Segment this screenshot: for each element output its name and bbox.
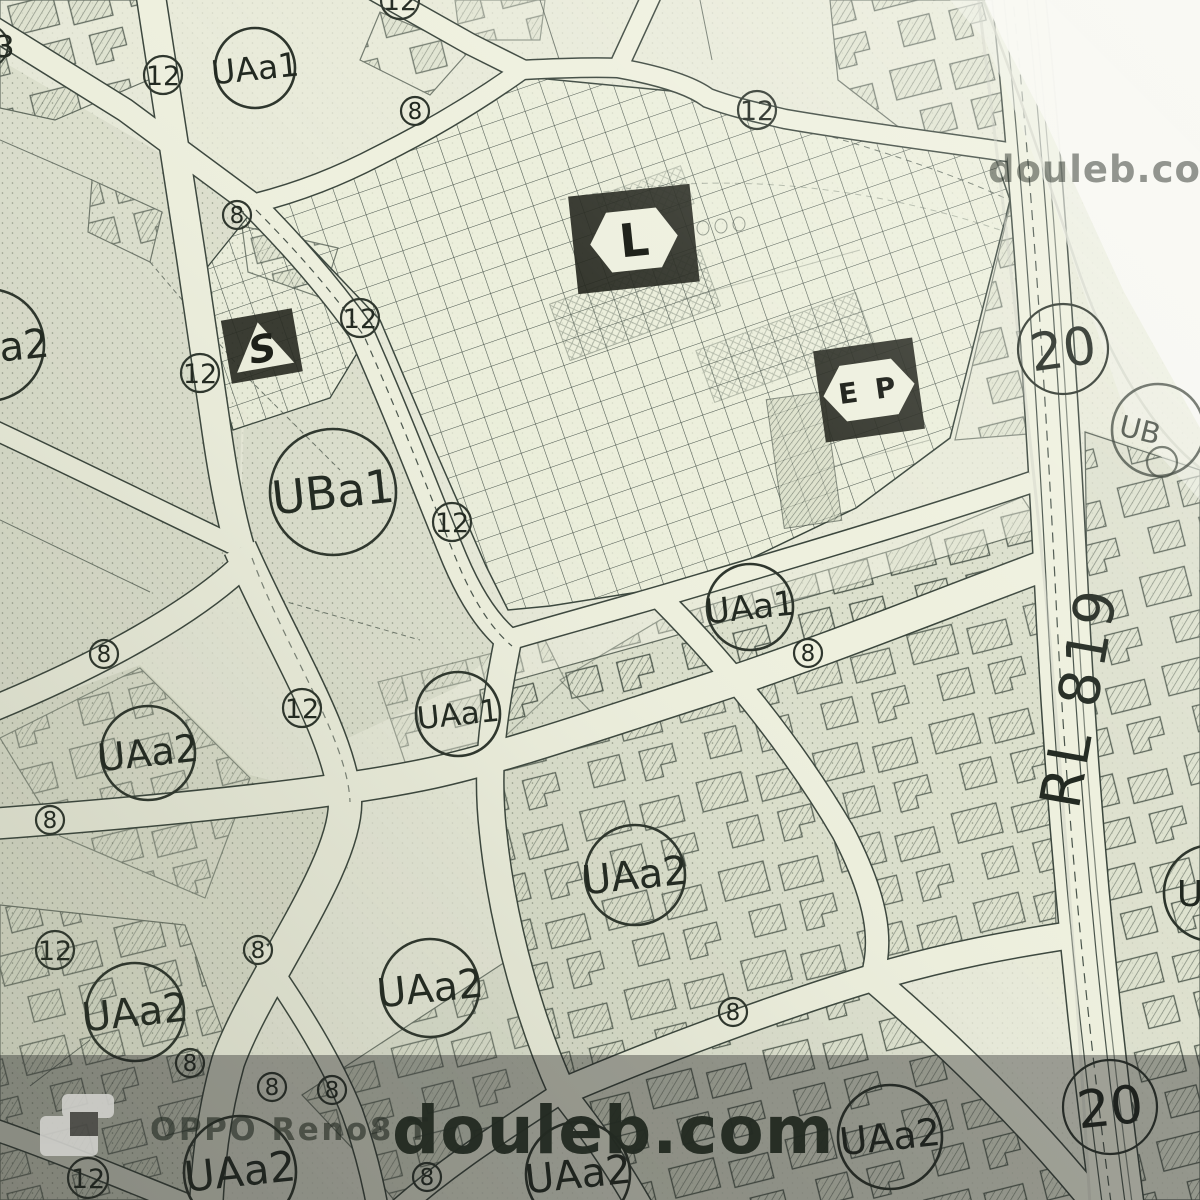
watermark-device: OPPO Reno8 T xyxy=(150,1112,431,1148)
watermark-band: OPPO Reno8 T douleb.com xyxy=(0,1055,1200,1200)
map-canvas: UAa1 UBa1 UAa1 UAa1 UAa2 UAa2 UAa2 UAa2 xyxy=(0,0,1200,1200)
zoning-map-photo: UAa1 UBa1 UAa1 UAa1 UAa2 UAa2 UAa2 UAa2 xyxy=(0,0,1200,1200)
watermark-site: douleb.com xyxy=(392,1092,835,1169)
watermark-site-top-right: douleb.com xyxy=(988,148,1200,191)
